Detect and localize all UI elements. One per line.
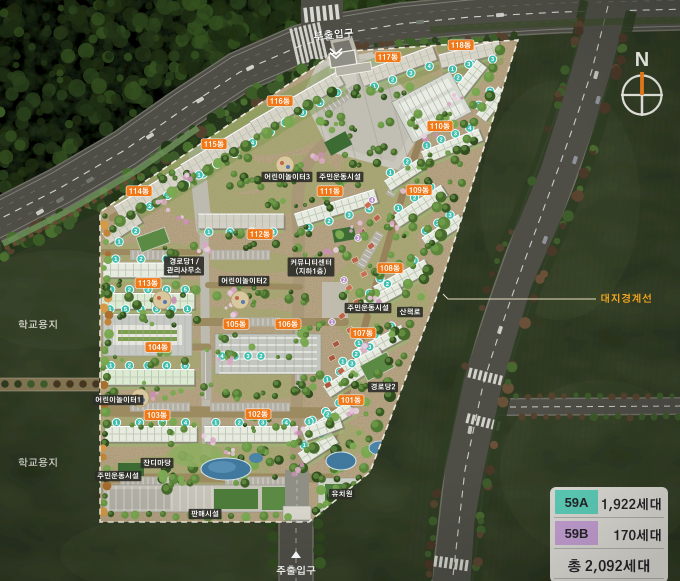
svg-text:1: 1 — [331, 320, 334, 326]
svg-text:2: 2 — [134, 229, 137, 235]
svg-text:N: N — [635, 49, 649, 71]
svg-text:59A: 59A — [565, 495, 589, 510]
svg-text:2: 2 — [259, 354, 262, 360]
svg-text:2: 2 — [128, 363, 131, 369]
svg-text:59B: 59B — [565, 526, 589, 541]
svg-text:2: 2 — [148, 204, 151, 210]
svg-text:2: 2 — [386, 282, 389, 288]
svg-text:2: 2 — [391, 78, 394, 84]
svg-text:2: 2 — [327, 219, 330, 225]
svg-text:2: 2 — [238, 420, 241, 426]
svg-text:3: 3 — [357, 236, 360, 242]
svg-text:2: 2 — [413, 196, 416, 202]
svg-text:2: 2 — [355, 352, 358, 358]
svg-text:2: 2 — [139, 257, 142, 263]
svg-text:2: 2 — [343, 278, 346, 284]
svg-text:4: 4 — [371, 198, 374, 204]
svg-text:2: 2 — [439, 138, 442, 144]
svg-text:2: 2 — [456, 76, 459, 82]
svg-text:2: 2 — [406, 160, 409, 166]
